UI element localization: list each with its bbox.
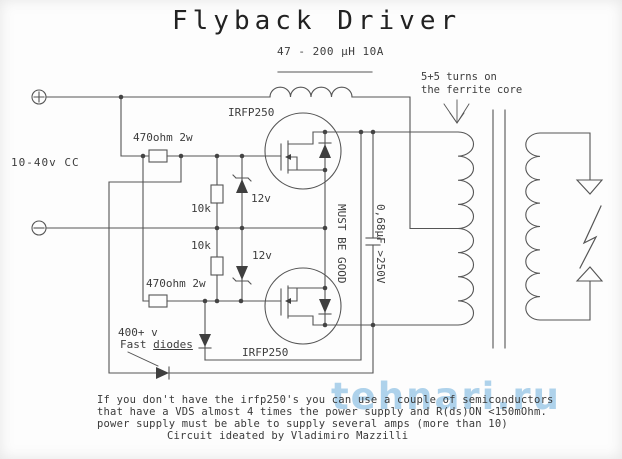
- mosfet-top-body-diode: [319, 132, 331, 170]
- footer-note-line2: that have a VDS almost 4 times the power…: [97, 406, 547, 418]
- pulldown-resistor-bottom-label: 10k: [191, 240, 211, 252]
- transformer-secondary-coil: [526, 133, 590, 320]
- gate-resistor-bottom-label: 470ohm 2w: [146, 278, 206, 290]
- fast-diode-vertical: [199, 334, 211, 348]
- positive-terminal: [32, 90, 46, 104]
- inductor-label: 47 - 200 µH 10A: [277, 46, 384, 58]
- negative-terminal: [32, 221, 46, 235]
- page-title: Flyback Driver: [172, 6, 461, 36]
- transformer-primary-coil: [458, 132, 474, 325]
- capacitor-note: 0,68µF >250V MUST BE GOOD: [387, 204, 413, 288]
- transformer-core: [493, 110, 505, 348]
- fast-diode-horizontal: [156, 367, 169, 379]
- flyback-driver-schematic: Flyback Driver 47 - 200 µH 10A 5+5 turns…: [0, 0, 622, 459]
- series-inductor-coil: [270, 72, 372, 97]
- mosfet-top-label: IRFP250: [228, 107, 274, 119]
- spark-gap-symbol: [577, 180, 602, 281]
- fast-diodes-pointer-line: [128, 352, 158, 366]
- turns-note-line1: 5+5 turns on: [421, 71, 497, 84]
- fast-diodes-word1: Fast: [120, 338, 153, 351]
- gate-resistor-top-label: 470ohm 2w: [133, 132, 193, 144]
- capacitor-note-line2: MUST BE GOOD: [335, 204, 348, 288]
- pulldown-resistor-top-label: 10k: [191, 203, 211, 215]
- footer-note-line1: If you don't have the irfp250's you can …: [97, 394, 554, 406]
- footer-credit-line: Circuit ideated by Vladimiro Mazzilli: [167, 430, 408, 442]
- footer-note-line3: power supply must be able to supply seve…: [97, 418, 508, 430]
- gate-supply-wire: [121, 97, 149, 301]
- turns-note-line2: the ferrite core: [421, 84, 522, 97]
- capacitor-note-line1: 0,68µF >250V: [374, 204, 387, 288]
- turns-note-arrow: [444, 100, 469, 123]
- mosfet-bottom-body-diode: [319, 288, 331, 325]
- fast-diodes-word2: diodes: [153, 338, 193, 351]
- mosfet-top-symbol: [265, 113, 341, 189]
- zener-bottom-label: 12v: [252, 250, 272, 262]
- fast-diodes-note-line2: Fast diodes: [120, 339, 193, 351]
- supply-voltage-label: 10-40v CC: [11, 157, 80, 169]
- zener-top-label: 12v: [251, 193, 271, 205]
- mosfet-bottom-label: IRFP250: [242, 347, 288, 359]
